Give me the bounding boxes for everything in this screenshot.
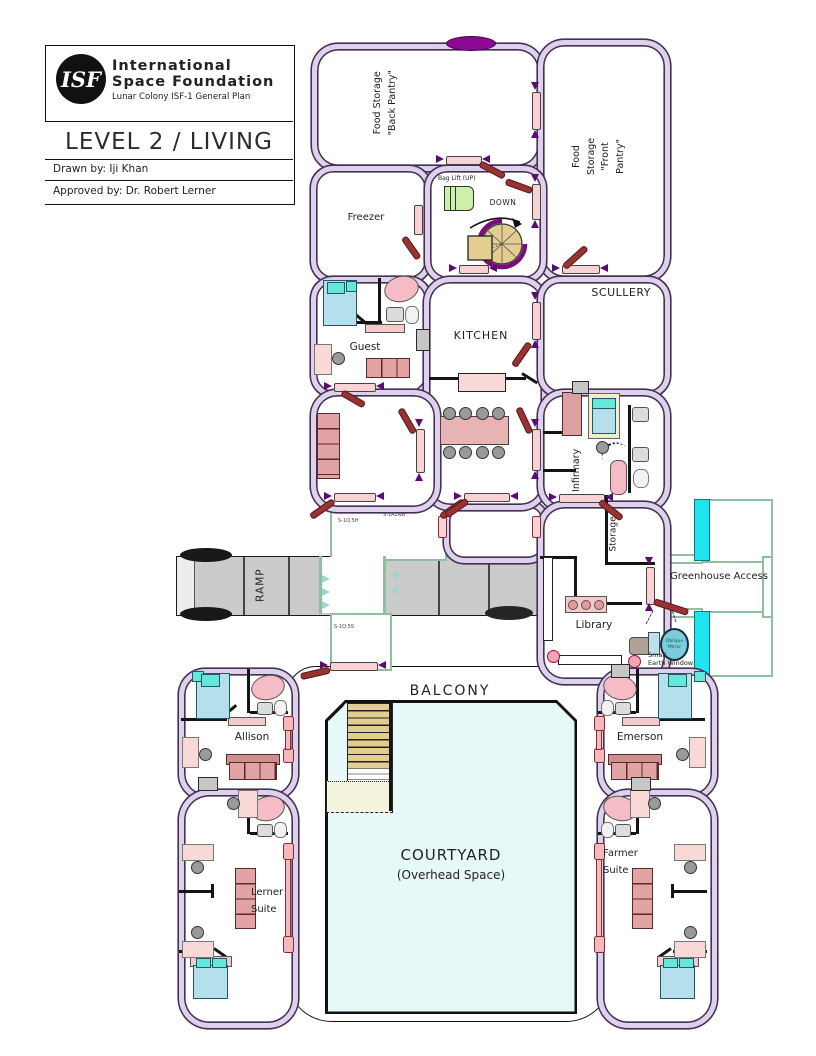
pocket-door-end: [283, 843, 294, 860]
door-arrow-icon: [489, 264, 497, 272]
library-shelf: [543, 557, 553, 641]
pocket-door-end: [594, 936, 605, 953]
bed-pillow: [668, 674, 687, 687]
bed: [193, 965, 228, 999]
sink: [257, 824, 273, 837]
ramp-divider: [243, 557, 245, 615]
section-tag-b: S-1A2&B: [383, 512, 427, 519]
ramp-roller: [485, 606, 533, 620]
front-pantry-label-wrap: Food Storage "Front Pantry": [572, 92, 627, 220]
chair: [191, 861, 204, 874]
earth-window-label: Small Earth Window: [648, 651, 700, 668]
infirmary-label: Infirmary: [571, 448, 586, 491]
org-name-line2: Space Foundation: [112, 72, 292, 93]
chair: [191, 926, 204, 939]
toilet: [274, 822, 287, 838]
pocket-door-end: [283, 936, 294, 953]
door-arrow-icon: [510, 492, 518, 500]
sink: [386, 307, 404, 322]
door: [330, 662, 378, 671]
door: [532, 516, 541, 538]
greenhouse-link: [762, 556, 773, 618]
door: [464, 493, 510, 502]
door-arrow-icon: [415, 473, 423, 481]
door: [532, 92, 541, 130]
courtyard-label: COURTYARD: [363, 845, 539, 867]
farmer-suite-label: Farmer Suite: [603, 845, 651, 879]
chair: [492, 446, 505, 459]
door-arrow-icon: [415, 419, 423, 427]
pass-through: [572, 381, 589, 394]
sofa: [366, 358, 410, 378]
room-back-pantry: [312, 44, 544, 171]
sink: [257, 702, 273, 715]
sink: [632, 407, 649, 422]
front-pantry-label: Food Storage "Front Pantry": [570, 129, 629, 184]
door-arrow-icon: [549, 493, 557, 501]
door: [532, 429, 541, 471]
library-table-dot: [581, 600, 591, 610]
ramp-arrow-icon: [322, 588, 330, 596]
door-arrow-icon: [645, 557, 653, 565]
chair: [227, 797, 240, 810]
greenhouse-glass: [694, 499, 710, 561]
chair: [199, 748, 212, 761]
desk: [630, 790, 650, 818]
greenhouse-label: Greenhouse Access: [666, 570, 772, 585]
ramp-divider: [288, 557, 290, 615]
door-arrow-icon: [531, 292, 539, 300]
door-arrow-icon: [449, 264, 457, 272]
toilet: [274, 700, 287, 716]
door: [438, 516, 447, 538]
farmer-wall: [671, 884, 674, 898]
door-arrow-icon: [531, 340, 539, 348]
chair: [459, 407, 472, 420]
pass-through: [611, 664, 630, 678]
plan-subtitle: Lunar Colony ISF-1 General Plan: [112, 91, 288, 103]
storage-label-wrap: Storage: [607, 508, 623, 560]
chair: [476, 446, 489, 459]
door-arrow-icon: [552, 264, 560, 272]
down-label: DOWN: [480, 198, 526, 209]
library-table-dot: [568, 600, 578, 610]
level-title: LEVEL 2 / LIVING: [47, 126, 291, 159]
toilet: [601, 822, 614, 838]
toilet: [405, 306, 419, 324]
floor-plan: ISF International Space Foundation Lunar…: [0, 0, 816, 1056]
chair: [492, 407, 505, 420]
ramp-label-wrap: RAMP: [246, 560, 276, 610]
chair: [684, 861, 697, 874]
dining-table: [440, 416, 509, 445]
isf-logo-icon: ISF: [56, 54, 106, 104]
storage-label: Storage: [608, 516, 622, 551]
desk: [238, 790, 258, 818]
chair: [459, 446, 472, 459]
door-arrow-icon: [600, 264, 608, 272]
corridor-crossing-wall: [383, 556, 386, 614]
ramp-roller: [180, 607, 232, 621]
guest-bath-wall: [378, 278, 381, 324]
door: [446, 156, 482, 165]
door-arrow-icon: [645, 603, 653, 611]
desk: [674, 844, 706, 861]
bed-pillow: [346, 281, 357, 292]
desk: [674, 941, 706, 958]
pass-through: [416, 329, 430, 351]
window-tile: [694, 671, 706, 682]
infirmary-cabinet: [562, 392, 582, 436]
ramp-divider: [438, 557, 440, 615]
door-arrow-icon: [436, 155, 444, 163]
pocket-door: [285, 730, 291, 750]
ramp-end-cap: [177, 557, 195, 615]
door: [416, 429, 425, 473]
door-arrow-icon: [454, 492, 462, 500]
sink: [615, 824, 631, 837]
kitchen-label: KITCHEN: [447, 328, 515, 344]
ramp-arrow-icon: [390, 571, 398, 579]
bag-lift-label: Bag Lift (UP): [438, 175, 502, 184]
shelf: [365, 324, 405, 333]
spiral-stair-icon: [466, 208, 532, 270]
door-arrow-icon: [482, 155, 490, 163]
door-arrow-icon: [378, 661, 386, 669]
library-table-dot: [594, 600, 604, 610]
door-arrow-icon: [531, 174, 539, 182]
sink: [632, 447, 649, 462]
door: [459, 265, 489, 274]
door-arrow-icon: [531, 82, 539, 90]
kitchen-counter: [458, 373, 506, 392]
back-pantry-label: Food Storage "Back Pantry": [371, 70, 400, 135]
desk: [689, 737, 706, 768]
kitchen-counter-wall: [504, 377, 526, 380]
desk: [182, 844, 214, 861]
sink: [615, 702, 631, 715]
bed-pillow: [679, 958, 694, 968]
desk: [182, 737, 199, 768]
farmer-wall: [673, 890, 707, 893]
ramp-arrow-icon: [322, 575, 330, 583]
lerner-suite-label: Lerner Suite: [251, 884, 295, 918]
pocket-door-end: [594, 748, 605, 763]
emerson-label: Emerson: [606, 730, 674, 745]
scullery-label: SCULLERY: [556, 285, 651, 301]
stairs-wall: [389, 701, 392, 811]
section-tag-a: S-1Q.5H: [338, 518, 382, 525]
wing-connector: [631, 777, 651, 791]
wing-connector: [198, 777, 218, 791]
ramp-roller: [180, 548, 232, 562]
shelf: [228, 717, 266, 726]
bed-pillow: [212, 958, 227, 968]
courtyard-sub-label: (Overhead Space): [363, 867, 539, 884]
toilet: [601, 700, 614, 716]
door-arrow-icon: [531, 471, 539, 479]
guest-label: Guest: [338, 340, 392, 355]
bed-pillow: [327, 282, 345, 294]
sofa: [317, 413, 340, 479]
desk: [182, 941, 214, 958]
door-arrow-icon: [376, 492, 384, 500]
back-pantry-label-wrap: Food Storage "Back Pantry": [352, 46, 420, 159]
room-kitchen: [424, 277, 547, 510]
door-arrow-icon: [320, 661, 328, 669]
door: [532, 184, 541, 220]
pocket-door-end: [283, 748, 294, 763]
kitchen-counter-wall: [429, 377, 458, 380]
door: [334, 493, 376, 502]
stairs-treads: [347, 703, 393, 771]
chair: [648, 797, 661, 810]
pocket-door-end: [283, 716, 294, 731]
stairs-landing: [326, 781, 393, 813]
lerner-wall: [211, 884, 214, 898]
door-arrow-icon: [324, 492, 332, 500]
bed: [660, 965, 695, 999]
bed-pillow: [592, 398, 616, 409]
approved-by: Approved by: Dr. Robert Lerner: [53, 184, 283, 199]
chair: [443, 407, 456, 420]
ramp-divider: [488, 557, 490, 615]
door-arrow-icon: [531, 130, 539, 138]
library-table: [565, 596, 607, 613]
door-arrow-icon: [531, 419, 539, 427]
infirmary-wall: [628, 405, 631, 493]
library-label: Library: [562, 618, 626, 633]
pocket-door: [596, 859, 602, 937]
chair: [676, 748, 689, 761]
pocket-door-end: [594, 716, 605, 731]
door: [334, 383, 376, 392]
bed-pillow: [196, 958, 211, 968]
allison-label: Allison: [220, 730, 284, 745]
infirmary-label-wrap: Infirmary: [570, 441, 586, 499]
allison-bath-wall: [247, 669, 250, 713]
ramp-arrow-icon: [322, 601, 330, 609]
oblique-mirror-label: Oblique Mirror: [666, 639, 683, 650]
door: [532, 302, 541, 340]
balcony-label: BALCONY: [398, 681, 502, 701]
bed-pillow: [663, 958, 678, 968]
door-arrow-icon: [531, 220, 539, 228]
airlock-hatch: [446, 36, 496, 51]
door-arrow-icon: [376, 382, 384, 390]
isf-logo-text: ISF: [61, 67, 101, 92]
ramp-label: RAMP: [253, 568, 269, 601]
ramp-arrow-icon: [390, 586, 398, 594]
section-tag-c: S-1Q.5S: [334, 624, 378, 631]
freezer-label: Freezer: [316, 211, 416, 226]
desk: [314, 344, 332, 375]
stairs-transition: [347, 769, 393, 781]
chair: [596, 441, 609, 454]
door-arrow-icon: [605, 493, 613, 501]
corridor-crossing: [321, 557, 383, 613]
chair: [443, 446, 456, 459]
pocket-door: [596, 730, 602, 750]
shelf: [622, 717, 660, 726]
door-arrow-icon: [324, 382, 332, 390]
toilet: [633, 469, 649, 488]
sofa: [229, 762, 277, 780]
chair: [476, 407, 489, 420]
drawn-by: Drawn by: Iji Khan: [53, 162, 283, 177]
chair: [684, 926, 697, 939]
lerner-wall: [179, 890, 213, 893]
stool: [547, 650, 560, 663]
bed-pillow: [201, 674, 220, 687]
